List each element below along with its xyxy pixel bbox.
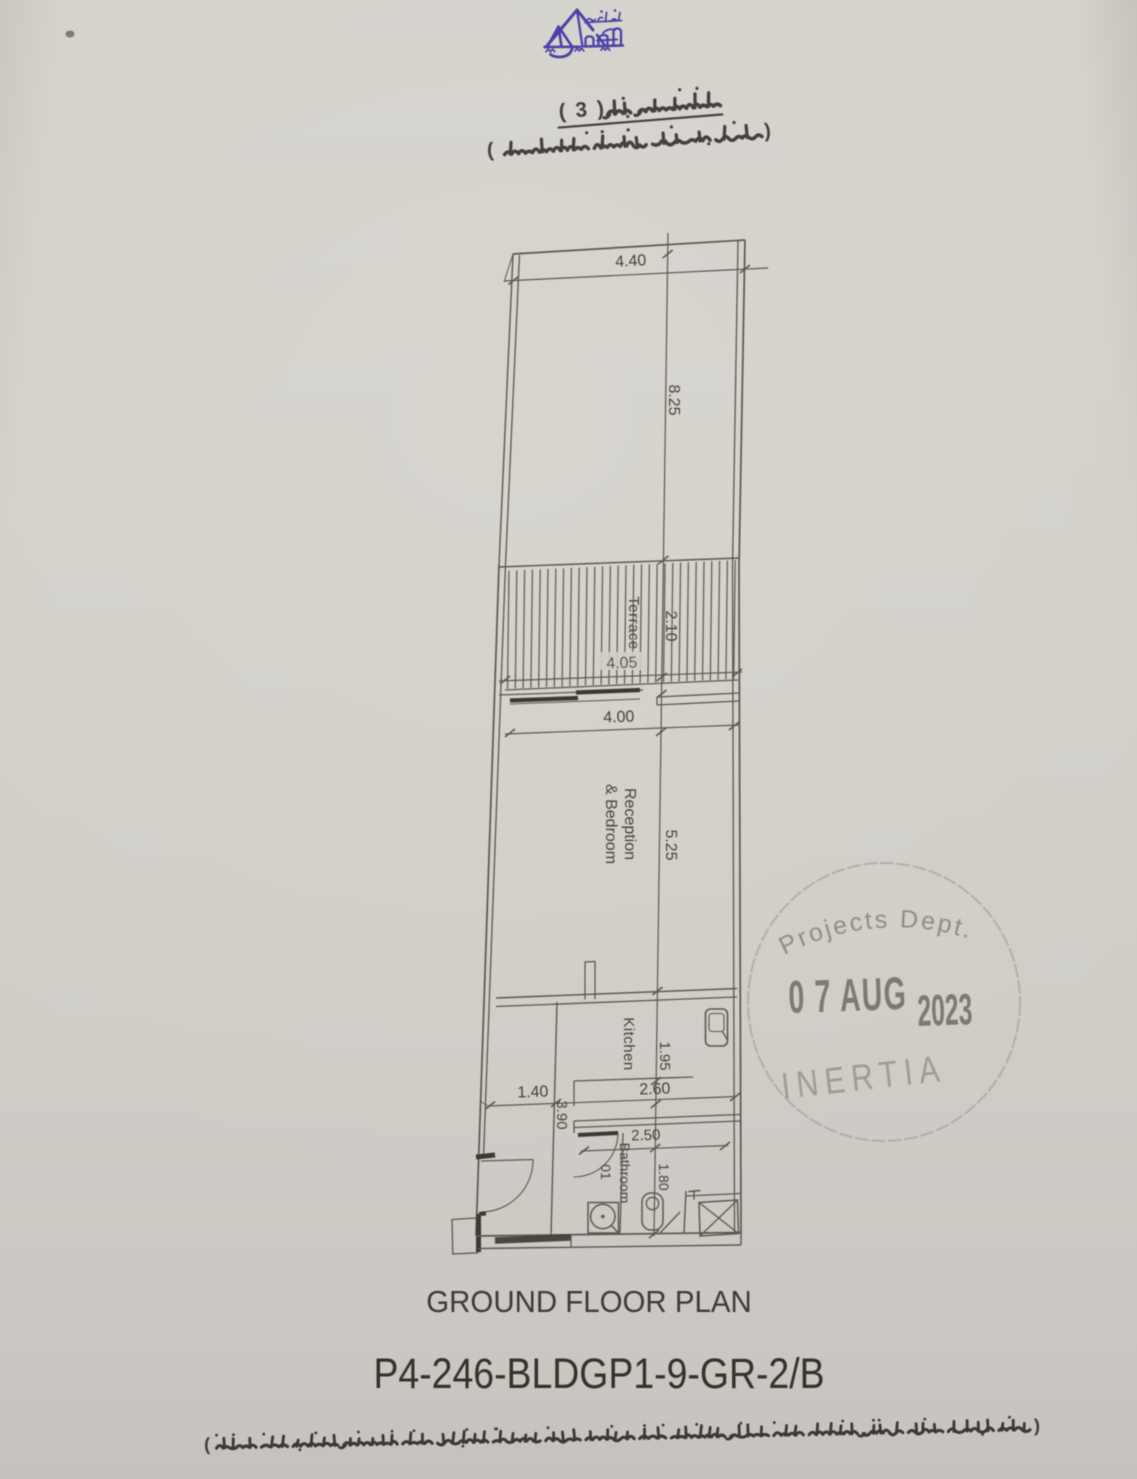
- svg-text:1.95: 1.95: [656, 1041, 673, 1070]
- svg-text:): ): [1034, 1416, 1040, 1436]
- svg-text:5.25: 5.25: [662, 829, 679, 860]
- svg-text:4.00: 4.00: [603, 708, 635, 726]
- svg-text:& Bedroom: & Bedroom: [602, 784, 619, 864]
- svg-text:3.90: 3.90: [553, 1100, 570, 1129]
- svg-text:8.25: 8.25: [665, 384, 682, 415]
- svg-text:GROUND FLOOR PLAN: GROUND FLOOR PLAN: [426, 1285, 751, 1319]
- svg-text:4.05: 4.05: [606, 654, 638, 672]
- svg-text:( 3 ): ( 3 ): [558, 97, 607, 124]
- svg-text:01: 01: [598, 1164, 614, 1180]
- svg-text:2023: 2023: [917, 985, 973, 1036]
- svg-text:4.40: 4.40: [615, 252, 647, 271]
- svg-text:(: (: [486, 139, 495, 161]
- svg-text:(: (: [204, 1434, 210, 1454]
- svg-text:0 7 AUG: 0 7 AUG: [788, 968, 908, 1024]
- svg-text:INERTIA: INERTIA: [779, 1048, 948, 1108]
- svg-text:2.50: 2.50: [631, 1126, 661, 1144]
- svg-text:Bathroom: Bathroom: [617, 1143, 633, 1204]
- svg-text:): ): [763, 120, 771, 142]
- svg-text:1.80: 1.80: [656, 1163, 672, 1190]
- svg-text:Kitchen: Kitchen: [620, 1017, 637, 1071]
- svg-text:2.10: 2.10: [662, 610, 679, 641]
- svg-text:Terrace: Terrace: [625, 596, 642, 650]
- svg-text:1.40: 1.40: [517, 1083, 549, 1101]
- svg-text:P4-246-BLDGP1-9-GR-2/B: P4-246-BLDGP1-9-GR-2/B: [373, 1350, 824, 1398]
- svg-text:Projects Dept.: Projects Dept.: [775, 905, 978, 960]
- svg-text:2.60: 2.60: [639, 1080, 671, 1098]
- svg-text:Reception: Reception: [621, 788, 638, 860]
